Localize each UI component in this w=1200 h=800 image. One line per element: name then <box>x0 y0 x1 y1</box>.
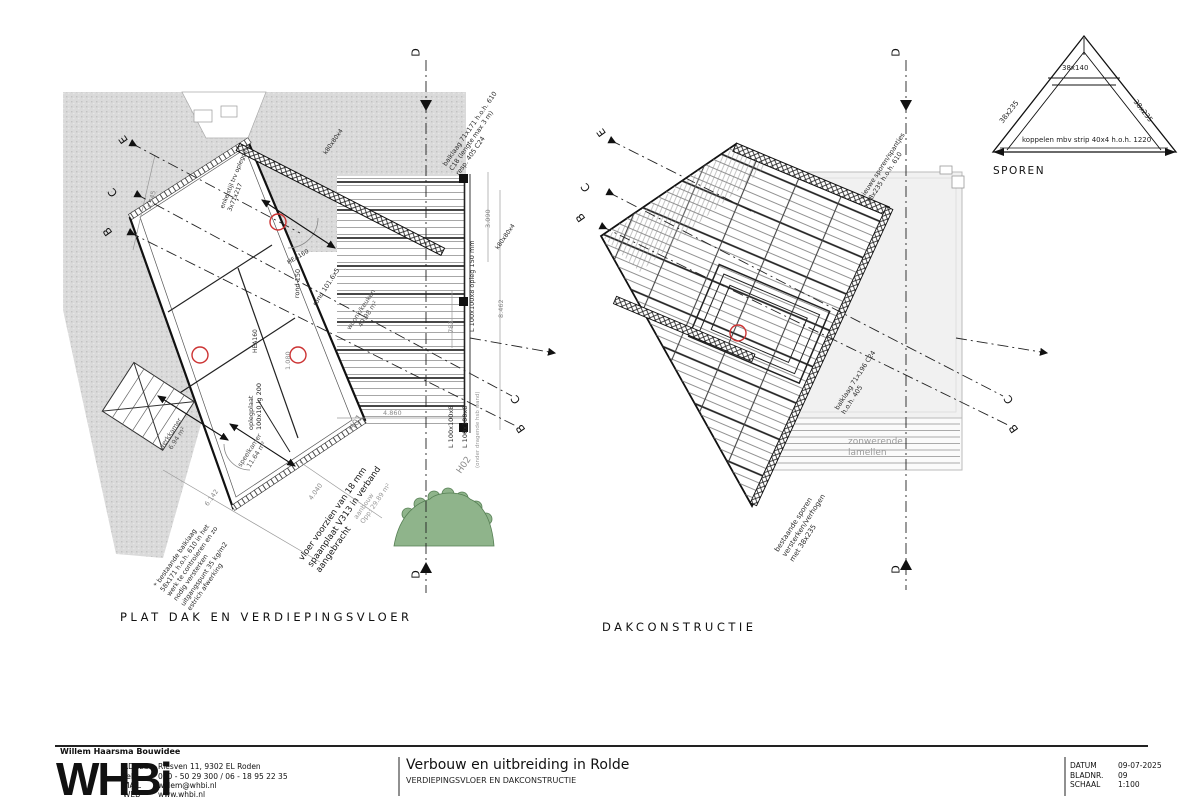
bladnr-value: 09 <box>1118 771 1128 780</box>
project-subtitle: VERDIEPINGSVLOER EN DAKCONSTRUCTIE <box>406 776 576 785</box>
plan-label-right: DAKCONSTRUCTIE <box>602 620 757 634</box>
annotation-l-profiel-3: L 100x100x8 <box>461 406 469 448</box>
detail-collar-size: 38x140 <box>1062 64 1088 72</box>
dimension-8462: 8.462 <box>497 299 505 318</box>
section-letter-d-top-left: D <box>410 48 423 56</box>
dimension-3090: 3.090 <box>484 209 492 228</box>
schaal-label: SCHAAL <box>1070 780 1100 789</box>
plan-label-left: PLAT DAK EN VERDIEPINGSVLOER <box>120 610 412 624</box>
drawing-sheet: balklaag 71x171 h.o.h. 610 C18 (lengte m… <box>0 0 1200 800</box>
dimension-783: 783 <box>447 321 455 333</box>
adres-label: ADRES <box>123 762 149 771</box>
mail-value: willem@whbi.nl <box>158 781 217 790</box>
detail-title-sporen: SPOREN <box>993 165 1045 177</box>
tel-value: 050 - 50 29 300 / 06 - 18 95 22 35 <box>158 772 288 781</box>
datum-label: DATUM <box>1070 761 1097 770</box>
schaal-value: 1:100 <box>1118 780 1140 789</box>
company-logo: WHBi <box>56 752 171 800</box>
annotation-oplegplaat: oplegplaat 100x10 lg 200 <box>247 383 263 430</box>
detail-strip-note: koppelen mbv strip 40x4 h.o.h. 1220 <box>1022 136 1151 144</box>
section-letter-d-bottom-right: D <box>890 565 903 573</box>
garden-shrub <box>394 488 494 546</box>
annotation-hea160-vert: HEA160 <box>252 329 260 353</box>
dimension-1080: 1.080 <box>284 351 292 370</box>
tel-label: Tel <box>123 772 133 781</box>
annotation-l-profiel-opleg: L 100x100x8 opleg 150 mm <box>468 240 476 332</box>
annotation-rond150: rond 150 <box>293 269 302 299</box>
bladnr-label: BLADNR. <box>1070 771 1103 780</box>
project-title: Verbouw en uitbreiding in Rolde <box>406 757 629 773</box>
web-label: WEB <box>123 790 140 799</box>
mail-label: MAIL <box>123 781 141 790</box>
web-value: www.whbi.nl <box>158 790 205 799</box>
dimension-4860: 4.860 <box>383 409 402 417</box>
datum-value: 09-07-2025 <box>1118 761 1162 770</box>
annotation-zonwerende-lamellen: zonwerende lamellen <box>848 437 903 460</box>
adres-value: Riesven 11, 9302 EL Roden <box>158 762 261 771</box>
linework-layer <box>0 0 1200 800</box>
annotation-onder-hsb-wand: (onder dragende hsb wand) <box>475 391 482 468</box>
annotation-l-profiel-2: L 100x100x8 <box>447 406 455 448</box>
section-letter-d-top-right: D <box>890 48 903 56</box>
section-letter-d-bottom-left: D <box>410 570 423 578</box>
